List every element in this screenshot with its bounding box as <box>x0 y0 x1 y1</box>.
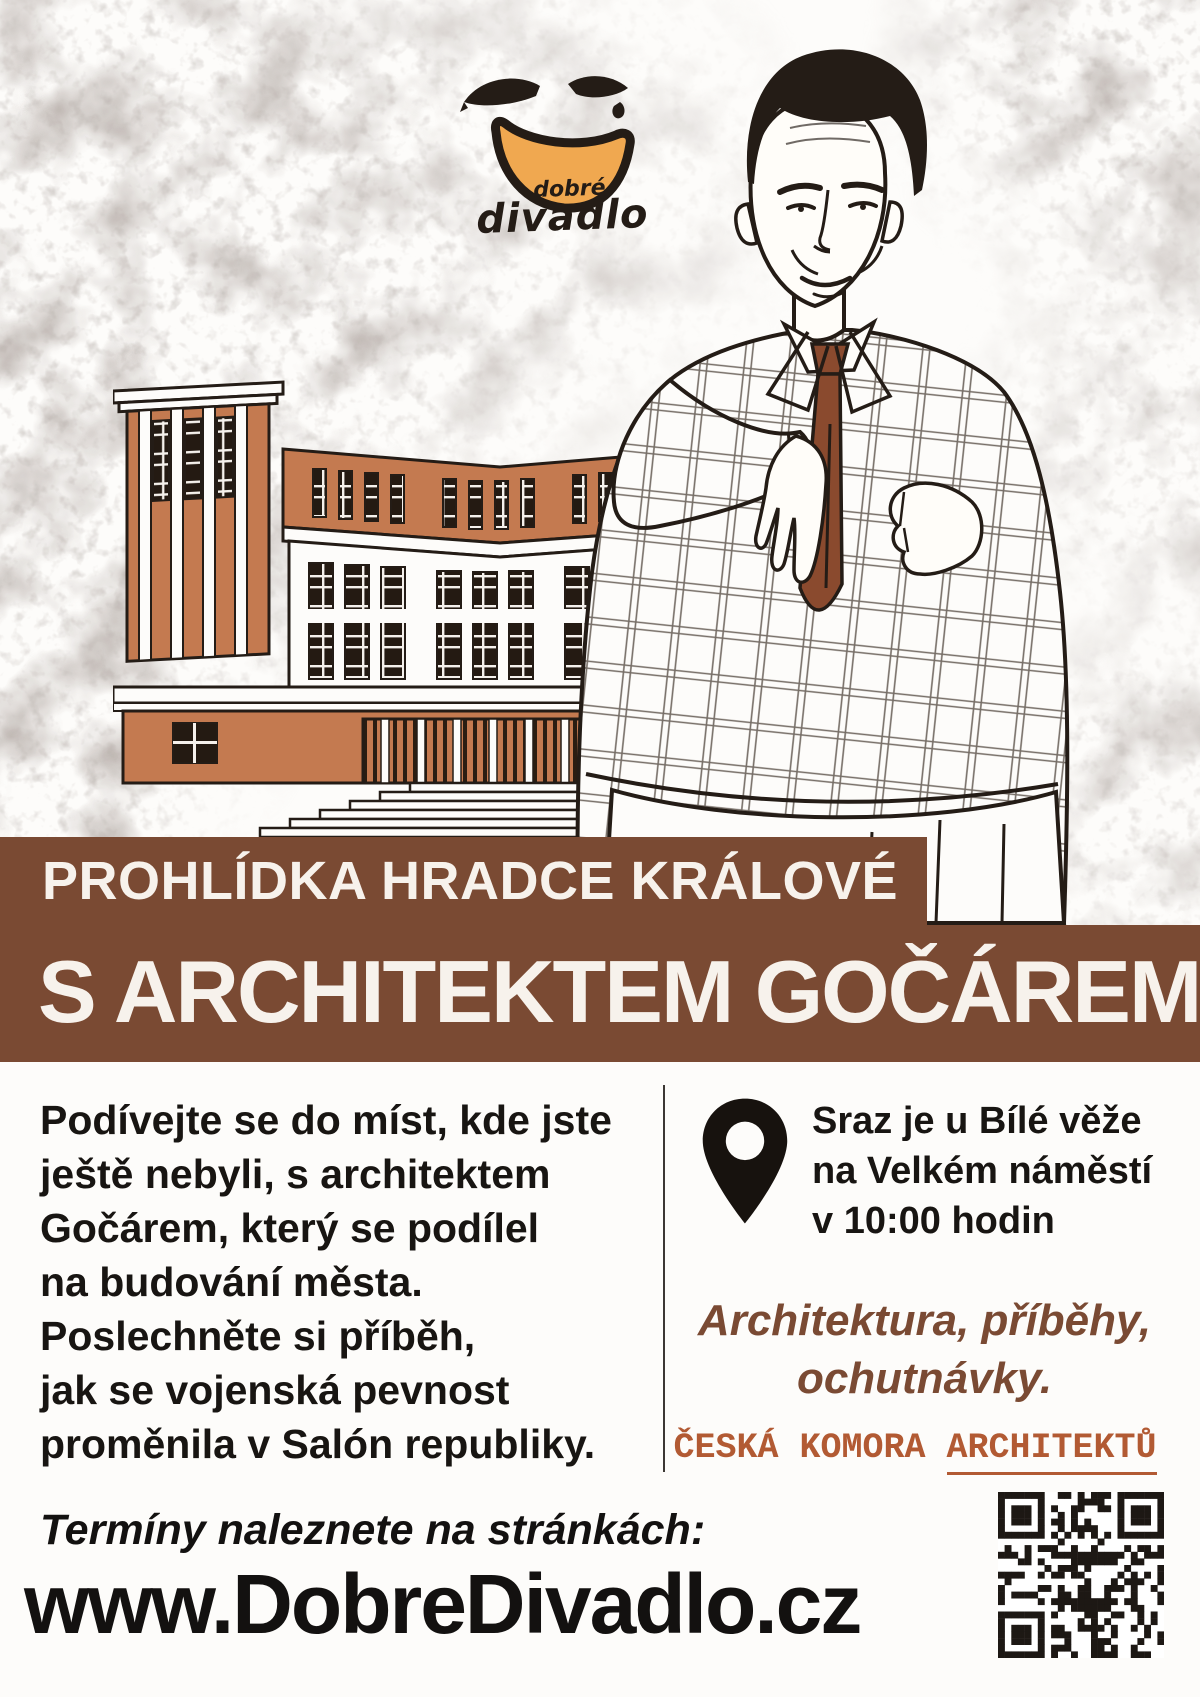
banner-line2: S ARCHITEKTEM GOČÁREM <box>0 925 1200 1062</box>
partner-credit: ČESKÁ KOMORA ARCHITEKTŮ <box>655 1428 1175 1468</box>
description-line: Podívejte se do míst, kde jste <box>40 1093 640 1147</box>
description-line: proměnila v Salón republiky. <box>40 1417 640 1471</box>
description-line: Gočárem, který se podílel <box>40 1201 640 1255</box>
description-line: na budování města. <box>40 1255 640 1309</box>
tagline-line: Architektura, příběhy, <box>672 1292 1177 1350</box>
description-line: jak se vojenská pevnost <box>40 1363 640 1417</box>
meeting-line: v 10:00 hodin <box>812 1196 1172 1246</box>
description-paragraph: Podívejte se do míst, kde jste ještě neb… <box>40 1093 640 1471</box>
partner-prefix: ČESKÁ KOMORA <box>673 1428 946 1468</box>
tagline-line: ochutnávky. <box>672 1350 1177 1408</box>
qr-code <box>998 1492 1164 1658</box>
meeting-info: Sraz je u Bílé věže na Velkém náměstí v … <box>812 1096 1172 1246</box>
meeting-line: na Velkém náměstí <box>812 1146 1172 1196</box>
vertical-divider <box>663 1085 665 1472</box>
banner-line1: PROHLÍDKA HRADCE KRÁLOVÉ <box>0 837 927 925</box>
banner-line2-text: S ARCHITEKTEM GOČÁREM <box>38 942 1200 1041</box>
tagline: Architektura, příběhy, ochutnávky. <box>672 1292 1177 1408</box>
description-line: ještě nebyli, s architektem <box>40 1147 640 1201</box>
qr-code-pattern <box>998 1492 1164 1658</box>
head <box>736 49 927 306</box>
footer-note: Termíny naleznete na stránkách: <box>40 1506 705 1555</box>
website-url: www.DobreDivadlo.cz <box>24 1556 860 1653</box>
architect-portrait-illustration <box>552 32 1082 925</box>
meeting-line: Sraz je u Bílé věže <box>812 1096 1172 1146</box>
poster-root: dobré divadlo <box>0 0 1200 1697</box>
description-line: Poslechněte si příběh, <box>40 1309 640 1363</box>
location-pin-icon <box>697 1092 793 1232</box>
partner-underlined: ARCHITEKTŮ <box>947 1428 1157 1475</box>
top-scene: dobré divadlo <box>0 0 1200 925</box>
banner-line1-text: PROHLÍDKA HRADCE KRÁLOVÉ <box>42 851 898 911</box>
